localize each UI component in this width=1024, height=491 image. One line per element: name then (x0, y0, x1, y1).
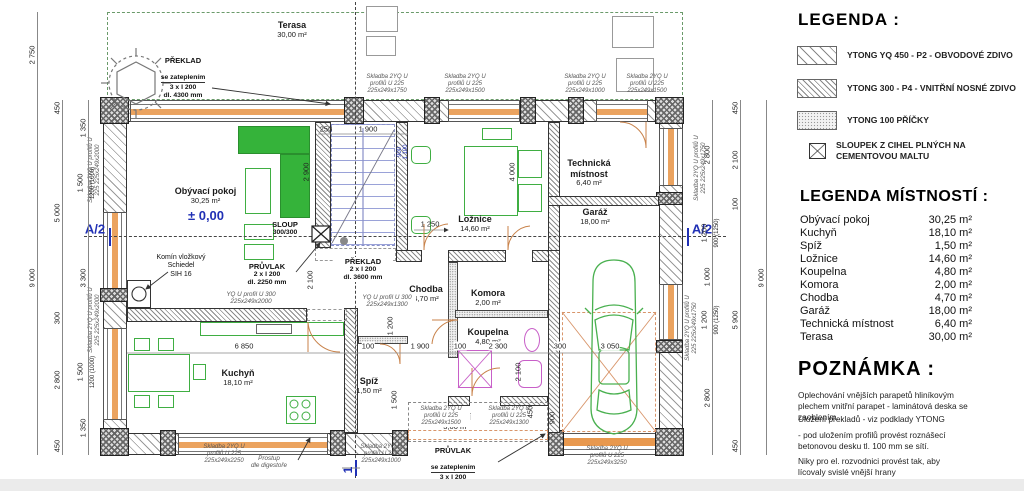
dim-label: 1 500 (76, 174, 85, 193)
pruvlak-mid-note: PRŮVLAK 2 x I 200 dl. 2250 mm (236, 262, 298, 287)
note-paragraph: Niky pro el. rozvodnici provést tak, aby… (798, 456, 968, 478)
wall-corridor-north-b (448, 250, 506, 262)
dining-table (128, 354, 190, 392)
preklad-top-note: PŘEKLAD se zateplením 3 x I 200 dl. 4300… (137, 56, 229, 101)
window-living-north (130, 100, 348, 122)
skladba-label: Skladba 2YQ U profilů U 225 225x249x1000 (352, 444, 410, 465)
wall-living-kitchen (127, 308, 307, 322)
note-title: POZNÁMKA : (798, 358, 935, 381)
dim-line (712, 100, 713, 455)
pruvlak-opening (307, 309, 347, 321)
pruvlak-zavetri (408, 430, 548, 440)
room-name: Terasa (800, 331, 929, 343)
dim-label: 1200 (1000) (90, 167, 96, 199)
chimney (127, 280, 151, 308)
room-area: 14,60 m² (929, 253, 972, 265)
section-line-1 (355, 2, 356, 478)
garage-door-swing (562, 312, 656, 432)
masonry-pier (344, 97, 364, 124)
room-name: Koupelna (800, 266, 935, 278)
dim-label: 2 100 (514, 363, 523, 382)
washbasin (524, 328, 540, 352)
dim-label: 100 (731, 198, 740, 211)
masonry-pier (100, 288, 129, 302)
rooms-legend-row: Technická místnost6,40 m² (800, 318, 972, 330)
window-height-label: 1 100 (403, 144, 409, 159)
preklad-mid-note: PŘEKLAD 2 x I 200 dl. 3600 mm (333, 257, 393, 282)
masonry-pier (655, 97, 684, 124)
terrace-furniture (612, 16, 654, 48)
room-area: 30,25 m² (929, 214, 972, 226)
wall-stairs-west (315, 122, 331, 248)
room-area: 4,70 m² (935, 292, 972, 304)
skladba-label: Skladba 2YQ U profilů U 225 225x249x2250 (195, 444, 253, 465)
dim-label: 5 000 (53, 204, 62, 223)
dim-label: 900 (1250) (714, 218, 720, 247)
window-living-west (103, 212, 127, 290)
room-label-kuchyn: Kuchyň18,10 m² (210, 368, 266, 387)
dim-label: 900 (1250) (714, 305, 720, 334)
room-name: Chodba (800, 292, 935, 304)
room-name: Komora (800, 279, 935, 291)
sloup-note: SLOUP 300/300 (262, 220, 308, 237)
skladba-label: Skladba 2YQ U profilů U 225 225x249x1500 (412, 406, 470, 427)
room-area: 18,10 m² (929, 227, 972, 239)
dim-label: 450 (731, 440, 740, 453)
dim-label: 1 500 (76, 363, 85, 382)
dim-line (62, 100, 63, 455)
dim-line (766, 100, 767, 455)
room-label-loznice: Ložnice14,60 m² (440, 214, 510, 233)
dim-label: 1 200 (700, 224, 709, 243)
room-name: Garáž (800, 305, 929, 317)
dim-label: 1 500 (390, 391, 399, 410)
shower (458, 350, 492, 388)
legend-item: YTONG 300 - P4 - VNITŘNÍ NOSNÉ ZDIVO (797, 79, 1023, 98)
dim-label: 5 900 (731, 311, 740, 330)
legend-panel: LEGENDA : YTONG YQ 450 - P2 - OBVODOVÉ Z… (790, 0, 1024, 491)
dim-label: 900 (548, 412, 557, 425)
room-label-garaz: Garáž18,00 m² (565, 207, 625, 226)
hatch-obvodove-swatch (797, 46, 837, 65)
rooms-legend-row: Spíž1,50 m² (800, 240, 972, 252)
sloupek-symbol (809, 143, 826, 159)
wall-stairs-east (396, 122, 408, 260)
room-name: Ložnice (800, 253, 929, 265)
dim-label: 300 (554, 342, 567, 351)
komin-note: Komín vložkový Schiedel SIH 16 (148, 254, 214, 279)
dim-label: 3 050 (601, 342, 620, 351)
note-paragraph: Uložení překladů - viz podklady YTONG (798, 414, 968, 425)
masonry-pier (656, 340, 683, 353)
dim-label: 1200 (1000) (90, 356, 96, 388)
hatch-nosne-swatch (797, 79, 837, 98)
wall-tech-garage (548, 196, 659, 206)
dim-label: 2 800 (703, 146, 712, 165)
window-tech-east (659, 128, 683, 186)
pillow (518, 150, 542, 178)
room-area: 6,40 m² (935, 318, 972, 330)
skladba-label: Skladba 2YQ U profilů U 225 225x249x2000 (88, 287, 102, 353)
floor-plan-sheet: Terasa30,00 m² Obývací pokoj30,25 m² ± 0… (0, 0, 1024, 491)
skladba-label: Skladba 2YQ U profilů U 225 225x249x1000 (556, 74, 614, 95)
dim-label: 2 800 (53, 371, 62, 390)
wall-bedroom-east (548, 122, 560, 262)
room-name: Obývací pokoj (800, 214, 929, 226)
masonry-pier (656, 192, 683, 205)
tv-bench (244, 244, 274, 260)
room-area: 30,00 m² (929, 331, 972, 343)
dim-label: 1 250 (421, 220, 440, 229)
dim-label: 2 300 (489, 342, 508, 351)
room-name: Spíž (800, 240, 935, 252)
yq-profil-note: YQ U profil U 300225x249x1300 (358, 294, 416, 308)
dim-label: 9 000 (757, 269, 766, 288)
dim-label: 450 (731, 102, 740, 115)
dim-label: 6 850 (235, 342, 254, 351)
dim-label: 1 200 (386, 317, 395, 336)
skladba-label: Skladba 2YQ U profilů U 225 225x249x3250 (578, 446, 636, 467)
dim-label: 450 (53, 102, 62, 115)
wall-komora-koupelna (455, 310, 548, 318)
dim-label: 2 100 (731, 151, 740, 170)
skladba-label: Skladba 2YQ U profilů U 225 225x249x1750 (685, 295, 699, 361)
masonry-pier (568, 97, 584, 124)
hatch-pricky-swatch (797, 111, 837, 130)
masonry-pier (548, 430, 564, 456)
room-label-komora: Komora2,00 m² (460, 288, 516, 307)
masonry-pier (100, 428, 129, 456)
legend-item: YTONG 100 PŘÍČKY (797, 111, 1023, 130)
legend-item: SLOUPEK Z CIHEL PLNÝCH NA CEMENTOVOU MAL… (797, 140, 1023, 161)
dim-label: 9 000 (28, 269, 37, 288)
rooms-legend-row: Kuchyň18,10 m² (800, 227, 972, 239)
masonry-pier (424, 97, 440, 124)
dim-label: 100 (362, 342, 375, 351)
dim-label: 2 800 (703, 389, 712, 408)
legend-title: LEGENDA : (798, 10, 900, 30)
note-paragraph: - pod uložením profilů provést roznášecí… (798, 430, 968, 452)
rooms-legend-row: Terasa30,00 m² (800, 331, 972, 343)
rooms-legend-row: Garáž18,00 m² (800, 305, 972, 317)
room-area: 18,00 m² (929, 305, 972, 317)
dim-label: 1 900 (411, 342, 430, 351)
dim-label: 1 350 (79, 419, 88, 438)
dim-label: 4 000 (508, 163, 517, 182)
room-label-obyvaci-pokoj: Obývací pokoj30,25 m² (158, 186, 253, 205)
dim-label: 2 100 (306, 271, 315, 290)
chair (193, 364, 206, 380)
masonry-pier (100, 97, 129, 124)
dim-label: 1 350 (79, 119, 88, 138)
wall-corridor-north-a (396, 250, 422, 262)
room-label-spiz: Spíž1,50 m² (346, 376, 392, 395)
dim-line (88, 100, 89, 455)
masonry-pier (160, 430, 176, 456)
chair (158, 338, 174, 351)
staircase (331, 124, 395, 246)
yq-profil-note: YQ U profil U 300225x249x2000 (205, 291, 297, 305)
masonry-pier (330, 430, 346, 456)
room-area: 2,00 m² (935, 279, 972, 291)
chair (411, 146, 431, 164)
legend-item-label: SLOUPEK Z CIHEL PLNÝCH NA CEMENTOVOU MAL… (836, 140, 976, 161)
dim-label: 1 900 (359, 125, 378, 134)
dim-label: 3 300 (79, 269, 88, 288)
rooms-legend-title: LEGENDA MÍSTNOSTÍ : (800, 188, 988, 206)
window-bedroom-north (448, 100, 520, 122)
section-line-a2 (84, 236, 726, 237)
floor-plan-drawing: Terasa30,00 m² Obývací pokoj30,25 m² ± 0… (0, 0, 790, 491)
room-label-technicka-mistnost: Technická místnost6,40 m² (556, 158, 622, 188)
terrace-furniture (366, 36, 396, 56)
legend-item: YTONG YQ 450 - P2 - OBVODOVÉ ZDIVO (797, 46, 1023, 65)
dim-label: 2 750 (28, 46, 37, 65)
chair (134, 395, 150, 408)
rooms-legend-row: Chodba4,70 m² (800, 292, 972, 304)
level-mark: ± 0,00 (180, 208, 232, 223)
room-label-terasa: Terasa30,00 m² (262, 20, 322, 39)
masonry-pier (655, 428, 684, 456)
chair (158, 395, 174, 408)
wardrobe (482, 128, 512, 140)
skladba-label: Skladba 2YQ U profilů U 225 225x249x1500 (436, 74, 494, 95)
dim-label: 2 900 (302, 163, 311, 182)
dim-label: 1 000 (703, 268, 712, 287)
page-bottom-strip (0, 479, 1024, 491)
legend-item-label: YTONG 300 - P4 - VNITŘNÍ NOSNÉ ZDIVO (847, 83, 1016, 94)
sofa (238, 126, 310, 154)
dim-line (740, 100, 741, 455)
dim-label: 250 (320, 125, 333, 134)
window-tech-north (596, 100, 648, 122)
legend-item-label: YTONG YQ 450 - P2 - OBVODOVÉ ZDIVO (847, 50, 1013, 61)
skladba-label: Skladba 2YQ U profilů U 225 225x249x1750 (358, 74, 416, 95)
dim-label: 300 (53, 312, 62, 325)
rooms-legend-row: Koupelna4,80 m² (800, 266, 972, 278)
dim-line (37, 12, 38, 455)
pillow (518, 184, 542, 212)
room-name: Kuchyň (800, 227, 929, 239)
rooms-legend-row: Obývací pokoj30,25 m² (800, 214, 972, 226)
room-name: Technická místnost (800, 318, 935, 330)
room-area: 1,50 m² (935, 240, 972, 252)
section-label-1: 1 (341, 467, 355, 474)
dim-label: 450 (526, 406, 535, 419)
window-garage-east (659, 284, 683, 340)
rooms-legend-row: Ložnice14,60 m² (800, 253, 972, 265)
legend-item-label: YTONG 100 PŘÍČKY (847, 115, 929, 126)
dim-label: 450 (53, 440, 62, 453)
masonry-pier (520, 97, 536, 124)
dim-label: 100 (454, 342, 467, 351)
kitchen-sink (256, 324, 292, 334)
window-kitchen-west (103, 328, 127, 420)
room-area: 4,80 m² (935, 266, 972, 278)
dim-label: 1 200 (700, 311, 709, 330)
rooms-legend-row: Komora2,00 m² (800, 279, 972, 291)
terrace-furniture (366, 6, 398, 32)
stove (286, 396, 316, 424)
chair (134, 338, 150, 351)
skladba-label: Skladba 2YQ U profilů U 225 225x249x1500 (618, 74, 676, 95)
